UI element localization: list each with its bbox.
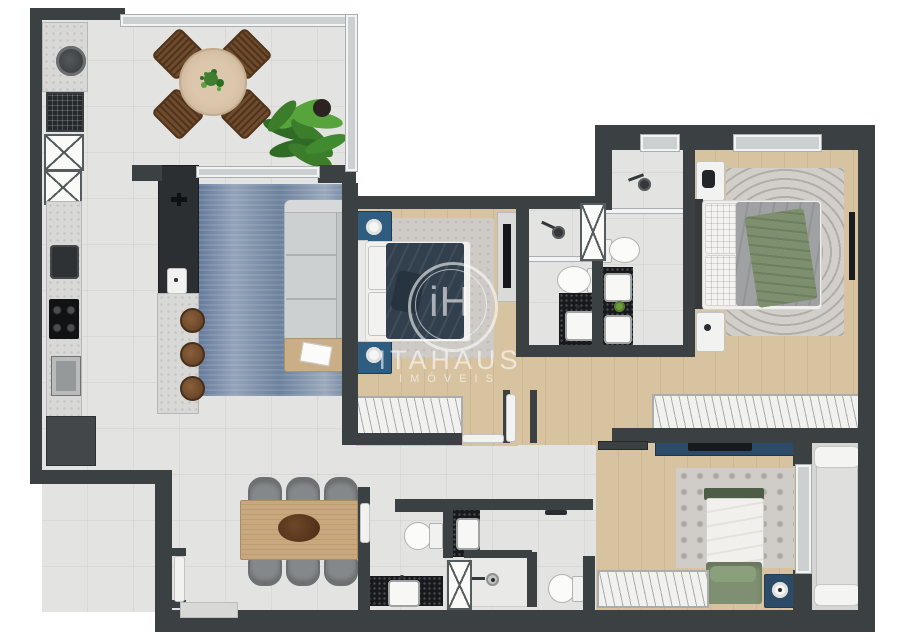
bedroom1-door-leaf	[462, 434, 504, 443]
shower-faucet	[472, 577, 485, 580]
wall-laundry-right	[583, 556, 595, 611]
masterbath-window	[640, 134, 680, 152]
bar-stool-2	[180, 342, 205, 367]
shaft-kitchen-1	[44, 134, 84, 171]
island-sink-drain	[174, 278, 178, 282]
master-wardrobe	[652, 394, 862, 432]
wall-master-south	[612, 428, 858, 443]
bedroom3-wardrobe	[597, 570, 709, 608]
wc-door-leaf	[360, 503, 370, 543]
shaft-bathrooms	[580, 203, 606, 261]
wc-faucet	[400, 575, 404, 579]
social-sink	[565, 311, 595, 341]
grill	[46, 92, 84, 132]
laundry-tub	[56, 46, 86, 76]
wall-bath-bottom	[516, 345, 695, 357]
laundry-sink	[456, 518, 480, 550]
master-shower-head-icon	[638, 178, 651, 191]
balcony-lounger	[816, 452, 858, 606]
entry-door-leaf	[174, 556, 185, 602]
entry-doormat	[180, 602, 238, 618]
wall-middle-top	[342, 196, 595, 209]
dining-chair-b2	[286, 556, 320, 586]
shaft-kitchen-2	[44, 170, 82, 205]
bedroom1-wardrobe	[355, 396, 463, 436]
watermark-monogram: iH	[408, 258, 492, 346]
wc-sink	[388, 580, 420, 607]
entry-door-post-top	[172, 548, 186, 556]
wall-shower-right	[527, 552, 537, 607]
island-faucet-stem	[177, 193, 181, 206]
clothes-rail	[545, 510, 567, 515]
bedroom3-green-pillow	[710, 566, 756, 582]
wall-shower-top	[464, 550, 532, 558]
social-shower-head-icon	[552, 226, 565, 239]
wall-bedroom1-bath	[516, 208, 529, 348]
balcony-lounger-cap-top	[814, 446, 860, 468]
master-nightstand-decor	[704, 324, 711, 331]
bedroom3-nightstand-dot	[778, 588, 782, 592]
master-sink-1	[604, 273, 632, 302]
master-lamp	[702, 170, 715, 188]
dining-chair-b3	[324, 556, 358, 586]
watermark-subtitle: IMÓVEIS	[360, 372, 540, 386]
wall-bottom	[155, 610, 875, 632]
bedroom3-mattress	[706, 498, 764, 568]
bedroom1-tv	[503, 224, 511, 288]
shaft-laundry	[447, 560, 472, 610]
wall-living-bedroom1	[342, 183, 358, 445]
corridor-post-2	[530, 390, 537, 443]
bedroom3-door-leaf	[598, 441, 648, 450]
bedroom1-nightstand-top-knob	[366, 219, 382, 235]
kitchen-cabinet	[46, 416, 96, 466]
social-faucet	[576, 305, 580, 309]
large-plant	[260, 86, 352, 174]
master-pillow-2	[705, 255, 740, 306]
wall-entry-vertical	[155, 484, 172, 612]
master-toilet-bowl	[609, 237, 640, 263]
refrigerator	[50, 245, 79, 279]
master-shower-glass	[600, 208, 685, 214]
master-pillow-1	[705, 203, 740, 254]
sofa-cushion-divider-1	[286, 254, 336, 256]
terrace-railing-right	[345, 14, 358, 172]
wc-toilet-tank	[429, 523, 443, 549]
wc-toilet-bowl	[404, 522, 432, 550]
wall-left	[30, 8, 42, 484]
wall-top-left	[30, 8, 125, 20]
dining-chair-b1	[248, 556, 282, 586]
balcony-lounger-cap-bottom	[814, 584, 860, 606]
social-toilet-bowl	[557, 266, 591, 294]
dining-centerpiece	[278, 514, 320, 542]
wall-right	[858, 125, 875, 632]
shower-drain-dot	[491, 578, 495, 582]
sofa-cushion-divider-2	[286, 298, 336, 300]
sofa-armrest	[285, 200, 347, 213]
bar-stool-1	[180, 308, 205, 333]
wall-masterbath-right	[683, 148, 695, 356]
master-vanity-plant	[614, 301, 625, 312]
wall-balcony-bottom	[793, 570, 812, 611]
oven	[51, 356, 81, 396]
terrace-sliding-door	[196, 166, 320, 178]
master-wall-tv	[849, 212, 855, 280]
master-window	[733, 134, 822, 152]
corridor-door-leaf	[506, 394, 516, 442]
table-plant	[204, 72, 218, 86]
master-nightstand-bottom	[696, 312, 725, 352]
wall-step-horizontal	[30, 470, 172, 484]
wall-laundry-top	[453, 499, 593, 510]
watermark-brand: ITAHAUS	[360, 348, 540, 372]
wall-wc-right	[443, 499, 453, 558]
wall-balcony-top	[793, 440, 812, 466]
floor-plan: iH ITAHAUS IMÓVEIS	[0, 0, 900, 642]
wall-wing-left	[595, 125, 612, 210]
wall-bedroom1-south	[342, 433, 462, 445]
terrace-railing-top	[120, 14, 358, 27]
cooktop	[49, 299, 79, 339]
master-sink-2	[604, 315, 632, 344]
shower-floor	[470, 556, 529, 607]
balcony-glass-door	[795, 464, 812, 574]
wall-terrace-stub-left	[132, 165, 162, 181]
bar-stool-3	[180, 376, 205, 401]
